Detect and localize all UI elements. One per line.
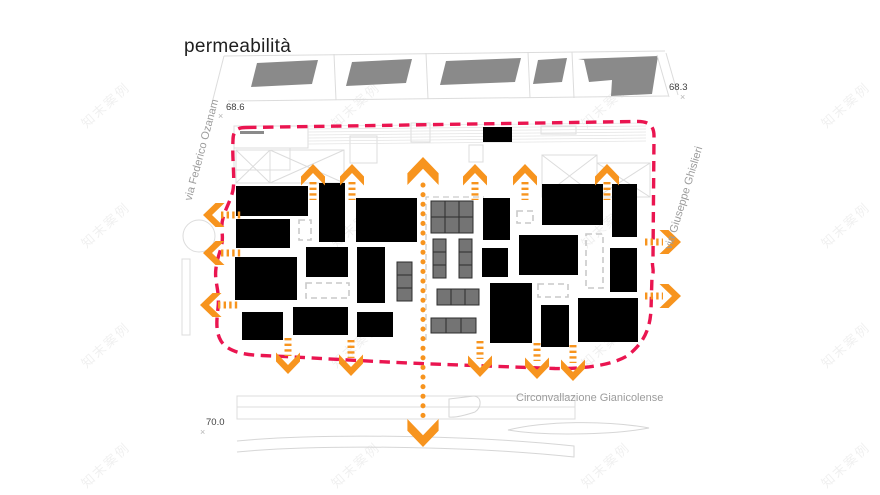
street-edge-line bbox=[426, 53, 428, 99]
hatch-line bbox=[308, 126, 646, 129]
context-outline-rect bbox=[182, 259, 190, 335]
building-block bbox=[578, 298, 638, 342]
module-cell bbox=[459, 217, 473, 233]
site-plan-svg bbox=[0, 0, 880, 495]
module-cell bbox=[433, 239, 446, 252]
building-block bbox=[482, 248, 508, 277]
module-cell bbox=[461, 318, 476, 333]
street-edge-line bbox=[572, 52, 574, 98]
street-edge-line bbox=[334, 54, 336, 100]
module-cell bbox=[445, 217, 459, 233]
context-outline-rect bbox=[469, 145, 483, 162]
module-cell bbox=[433, 265, 446, 278]
elevation-value-top-left: 68.6 bbox=[226, 102, 245, 113]
street-edge-line bbox=[212, 56, 224, 103]
module-cell bbox=[437, 289, 451, 305]
black-buildings-layer bbox=[235, 127, 638, 347]
building-block bbox=[483, 198, 510, 240]
building-block bbox=[356, 198, 417, 242]
building-block bbox=[236, 186, 308, 216]
context-outline-rect bbox=[237, 407, 575, 419]
module-cell bbox=[459, 239, 472, 252]
module-cell bbox=[445, 201, 459, 217]
dashed-plot-box bbox=[517, 211, 533, 223]
building-block bbox=[236, 219, 290, 248]
hatch-line bbox=[308, 132, 646, 135]
context-building bbox=[346, 59, 412, 86]
hatch-line bbox=[308, 138, 646, 141]
building-block bbox=[483, 127, 512, 142]
diagram-title: permeabilità bbox=[184, 36, 291, 58]
main-axis-arrow-down bbox=[407, 419, 438, 447]
module-cell bbox=[397, 275, 412, 288]
module-cell bbox=[431, 201, 445, 217]
building-block bbox=[242, 312, 283, 340]
context-building bbox=[533, 58, 567, 84]
dashed-plot-box bbox=[538, 284, 568, 297]
building-block bbox=[357, 247, 385, 303]
module-cell bbox=[431, 217, 445, 233]
building-block bbox=[490, 283, 532, 343]
context-building bbox=[578, 56, 658, 96]
main-axis-arrow-up bbox=[407, 157, 438, 185]
building-block bbox=[306, 247, 348, 277]
building-block bbox=[519, 235, 578, 275]
context-road-outline bbox=[237, 436, 574, 457]
elevation-marker-bottom-left: × bbox=[200, 427, 205, 437]
module-cell bbox=[433, 252, 446, 265]
module-cell bbox=[465, 289, 479, 305]
street-edge-line bbox=[657, 55, 669, 97]
module-cell bbox=[459, 252, 472, 265]
building-block bbox=[610, 248, 637, 292]
context-outline-rect bbox=[234, 148, 290, 170]
context-building bbox=[251, 60, 318, 87]
module-cell bbox=[459, 201, 473, 217]
hatch-line bbox=[308, 129, 646, 132]
module-cell bbox=[459, 265, 472, 278]
dashed-plot-box bbox=[299, 220, 311, 240]
module-cell bbox=[397, 288, 412, 301]
street-label-circonvallazione-gianicolense: Circonvallazione Gianicolense bbox=[516, 392, 663, 404]
building-block bbox=[357, 312, 393, 337]
building-block bbox=[319, 183, 345, 242]
context-road-outline bbox=[508, 423, 649, 434]
context-outline-rect bbox=[234, 126, 308, 148]
building-block bbox=[612, 184, 637, 237]
dashed-plot-box bbox=[586, 234, 603, 288]
module-cell bbox=[397, 262, 412, 275]
hatch-line bbox=[308, 141, 646, 144]
dashed-plot-box bbox=[306, 283, 349, 298]
elevation-marker-top-right: × bbox=[680, 92, 685, 102]
street-edge-line bbox=[528, 52, 530, 98]
context-building bbox=[440, 58, 521, 85]
arrow-chevron-icon bbox=[407, 157, 438, 185]
permeability-diagram-canvas: 知末案例知末案例知末案例知末案例知末案例知末案例知末案例知末案例知末案例知末案例… bbox=[0, 0, 880, 495]
building-block bbox=[542, 184, 603, 225]
building-block bbox=[293, 307, 348, 335]
context-detail-rect bbox=[240, 131, 264, 134]
building-block bbox=[541, 305, 569, 347]
module-cell bbox=[431, 318, 446, 333]
building-block bbox=[235, 257, 297, 300]
module-cell bbox=[446, 318, 461, 333]
x-box-diagonals bbox=[236, 150, 270, 183]
arrow-chevron-icon bbox=[407, 419, 438, 447]
elevation-marker-top-left: × bbox=[218, 111, 223, 121]
module-cell bbox=[451, 289, 465, 305]
elevation-value-bottom-left: 70.0 bbox=[206, 417, 225, 428]
street-edge-line bbox=[228, 96, 668, 101]
